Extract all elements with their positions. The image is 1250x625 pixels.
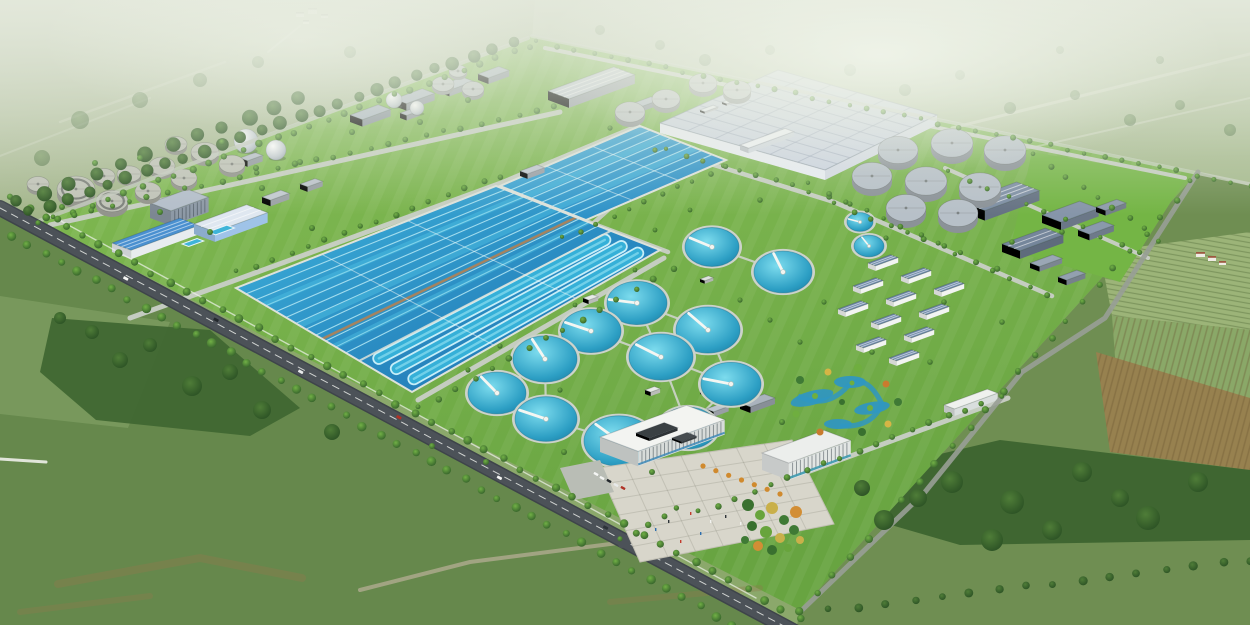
- tree: [207, 229, 213, 235]
- roadside-tree: [1127, 215, 1133, 221]
- roadside-tree: [512, 503, 521, 512]
- roadside-tree: [1097, 282, 1103, 288]
- roadside-tree: [493, 495, 500, 502]
- roadside-tree: [768, 482, 773, 487]
- roadside-tree: [327, 403, 335, 411]
- garden-tree: [775, 533, 785, 543]
- roadside-tree: [873, 441, 879, 447]
- clarifier-hub: [729, 382, 734, 387]
- pedestrian: [690, 512, 691, 515]
- roadside-tree: [374, 220, 379, 225]
- roadside-tree: [1044, 292, 1050, 298]
- pedestrian: [725, 515, 726, 518]
- roadside-tree: [543, 521, 551, 529]
- roadside-tree: [500, 454, 507, 461]
- roadside-tree: [357, 422, 366, 431]
- tree-clump: [909, 489, 927, 507]
- roadside-tree: [657, 541, 664, 548]
- roadside-tree: [982, 406, 989, 413]
- roadside-tree: [760, 596, 769, 605]
- autumn-tree: [777, 491, 782, 496]
- roadside-tree: [1081, 224, 1086, 229]
- roadside-tree: [673, 550, 680, 557]
- tree-clump: [874, 510, 894, 530]
- farm-roof: [1219, 261, 1226, 263]
- roadside-tree: [697, 602, 704, 609]
- roadside-tree: [92, 275, 101, 284]
- roadside-tree: [234, 314, 243, 323]
- roadside-tree: [516, 466, 523, 473]
- roadside-tree: [343, 412, 350, 419]
- roadside-tree: [936, 241, 941, 246]
- tree-clump: [941, 471, 963, 493]
- roadside-tree: [234, 269, 239, 274]
- roadside-tree: [1063, 319, 1068, 324]
- garden-tree: [790, 506, 802, 518]
- roadside-tree: [412, 410, 420, 418]
- roadside-tree: [308, 354, 314, 360]
- autumn-tree: [713, 468, 718, 473]
- roadside-tree: [35, 220, 40, 225]
- roadside-tree: [968, 424, 975, 431]
- roadside-tree: [612, 558, 620, 566]
- roadside-tree: [360, 380, 367, 387]
- tree-clump: [1111, 489, 1129, 507]
- tree-clump: [1022, 582, 1030, 590]
- roadside-tree: [227, 347, 236, 356]
- roadside-tree: [645, 522, 651, 528]
- roadside-tree: [58, 259, 65, 266]
- roadside-tree: [634, 287, 639, 292]
- roadside-tree: [147, 271, 154, 278]
- roadside-tree: [958, 250, 963, 255]
- roadside-tree: [183, 288, 191, 296]
- roadside-tree: [568, 493, 576, 501]
- tree: [557, 387, 562, 392]
- tree-clump: [112, 352, 128, 368]
- roadside-tree: [560, 235, 564, 239]
- tree-clump: [995, 585, 1003, 593]
- autumn-tree: [765, 487, 770, 492]
- roadside-tree: [292, 385, 301, 394]
- roadside-tree: [633, 530, 640, 537]
- tree: [1059, 229, 1065, 235]
- roadside-tree: [505, 355, 512, 362]
- tree-clump: [1132, 569, 1140, 577]
- roadside-tree: [674, 505, 679, 510]
- roadside-tree: [620, 519, 628, 527]
- roadside-tree: [452, 386, 458, 392]
- roadside-tree: [617, 536, 622, 541]
- tree-clump: [1072, 462, 1092, 482]
- roadside-tree: [436, 396, 443, 403]
- pond-island: [867, 405, 873, 411]
- tree-clump: [964, 588, 973, 597]
- pond-island: [812, 393, 818, 399]
- pedestrian: [700, 532, 701, 535]
- clarifier-hub: [706, 328, 711, 333]
- tree: [1009, 239, 1015, 245]
- roadside-tree: [1119, 242, 1125, 248]
- tree: [497, 343, 502, 348]
- roadside-tree: [578, 229, 583, 234]
- roadside-tree: [166, 278, 175, 287]
- tree: [927, 359, 933, 365]
- roadside-tree: [752, 489, 758, 495]
- tree-clump: [182, 376, 202, 396]
- tree: [941, 299, 947, 305]
- tree-clump: [1189, 561, 1198, 570]
- tree-clump: [1105, 573, 1113, 581]
- roadside-tree: [1144, 231, 1150, 237]
- clarifier-hub: [544, 417, 549, 422]
- roadside-tree: [650, 276, 657, 283]
- pond-island: [850, 381, 855, 386]
- roadside-tree: [725, 576, 732, 583]
- pedestrian: [710, 520, 711, 523]
- roadside-tree: [797, 615, 805, 623]
- roadside-tree: [442, 465, 451, 474]
- tree: [483, 459, 489, 465]
- clarifier-hub: [589, 329, 594, 334]
- garden-tree: [789, 525, 799, 535]
- roadside-tree: [865, 535, 873, 543]
- tree: [309, 225, 315, 231]
- roadside-tree: [1007, 276, 1012, 281]
- roadside-tree: [708, 567, 716, 575]
- clarifier-hub: [495, 391, 500, 396]
- roadside-tree: [207, 338, 217, 348]
- roadside-tree: [776, 605, 784, 613]
- tree-clump: [143, 338, 157, 352]
- roadside-tree: [51, 215, 56, 220]
- roadside-tree: [1080, 299, 1086, 305]
- roadside-tree: [527, 345, 533, 351]
- roadside-tree: [1049, 335, 1056, 342]
- clarifier-hub: [710, 245, 715, 250]
- clarifier-hub: [659, 355, 664, 360]
- tree: [767, 317, 772, 322]
- roadside-tree: [847, 553, 855, 561]
- roadside-tree: [377, 431, 386, 440]
- roadside-tree: [593, 222, 598, 227]
- tree-clump: [85, 325, 99, 339]
- tree-clump: [981, 529, 1003, 551]
- farm-roof: [1208, 256, 1216, 258]
- roadside-tree: [253, 264, 259, 270]
- garden-tree: [793, 411, 800, 418]
- roadside-tree: [242, 359, 250, 367]
- roadside-tree: [490, 366, 495, 371]
- roadside-tree: [910, 427, 915, 432]
- roadside-tree: [889, 223, 894, 228]
- tree: [797, 339, 802, 344]
- tree-clump: [253, 401, 271, 419]
- clarifier-hub: [635, 301, 640, 306]
- roadside-tree: [711, 612, 721, 622]
- rendering-canvas: [0, 0, 1250, 625]
- tree-clump: [881, 600, 889, 608]
- tree-clump: [324, 424, 340, 440]
- roadside-tree: [905, 230, 910, 235]
- roadside-tree: [745, 585, 752, 592]
- roadside-tree: [533, 476, 539, 482]
- roadside-tree: [804, 467, 810, 473]
- garden-tree: [760, 526, 772, 538]
- roadside-tree: [563, 530, 570, 537]
- roadside-tree: [307, 394, 316, 403]
- roadside-tree: [784, 474, 791, 481]
- roadside-tree: [795, 607, 803, 615]
- roadside-tree: [605, 511, 611, 517]
- roadside-tree: [828, 572, 835, 579]
- roadside-tree: [930, 460, 938, 468]
- tree: [737, 297, 742, 302]
- garden-tree: [883, 381, 890, 388]
- roadside-tree: [142, 304, 152, 314]
- garden-tree: [767, 545, 777, 555]
- roadside-tree: [416, 404, 421, 409]
- garden-tree: [796, 536, 804, 544]
- garden-tree: [766, 502, 778, 514]
- roadside-tree: [560, 328, 565, 333]
- roadside-tree: [79, 232, 85, 238]
- pedestrian: [655, 528, 656, 531]
- roadside-tree: [962, 408, 968, 414]
- tree-clump: [1042, 520, 1062, 540]
- roadside-tree: [868, 216, 873, 221]
- tree: [633, 268, 638, 273]
- roadside-tree: [946, 412, 952, 418]
- roadside-tree: [990, 268, 995, 273]
- roadside-tree: [269, 257, 275, 263]
- roadside-tree: [677, 593, 685, 601]
- roadside-tree: [448, 428, 455, 435]
- garden-tree: [796, 376, 804, 384]
- roadside-tree: [339, 371, 347, 379]
- tree-clump: [1220, 558, 1229, 567]
- garden-tree: [784, 544, 792, 552]
- clarifier-hub: [867, 244, 870, 247]
- roadside-tree: [612, 214, 617, 219]
- roadside-tree: [115, 249, 123, 257]
- roadside-tree: [413, 449, 420, 456]
- roadside-tree: [427, 456, 437, 466]
- tree: [653, 228, 658, 233]
- tree-clump: [1000, 490, 1024, 514]
- autumn-tree: [700, 463, 705, 468]
- tree-clump: [912, 597, 919, 604]
- tree-clump: [854, 604, 863, 613]
- roadside-tree: [7, 232, 16, 241]
- roadside-tree: [1156, 239, 1161, 244]
- roadside-tree: [925, 419, 932, 426]
- garden-tree: [894, 398, 902, 406]
- tree-clump: [1163, 566, 1170, 573]
- roadside-tree: [321, 236, 327, 242]
- roadside-tree: [306, 244, 311, 249]
- roadside-tree: [131, 259, 138, 266]
- roadside-tree: [552, 484, 560, 492]
- tree: [649, 469, 655, 475]
- tree-clump: [222, 364, 238, 380]
- roadside-tree: [580, 317, 587, 324]
- roadside-tree: [271, 335, 279, 343]
- roadside-tree: [898, 497, 905, 504]
- tree: [821, 299, 826, 304]
- clarifier-hub: [858, 220, 861, 223]
- roadside-tree: [157, 313, 166, 322]
- roadside-tree: [916, 478, 923, 485]
- roadside-tree: [342, 230, 348, 236]
- roadside-tree: [23, 241, 31, 249]
- roadside-tree: [646, 575, 656, 585]
- tree: [465, 367, 470, 372]
- roadside-tree: [94, 240, 102, 248]
- tree-clump: [1136, 506, 1160, 530]
- roadside-tree: [889, 434, 895, 440]
- tree-clump: [54, 312, 66, 324]
- roadside-tree: [258, 368, 266, 376]
- roadside-tree: [220, 306, 227, 313]
- tree-clump: [1079, 576, 1088, 585]
- roadside-tree: [173, 322, 181, 330]
- tree: [883, 235, 888, 240]
- roadside-tree: [613, 297, 619, 303]
- roadside-tree: [837, 456, 842, 461]
- roadside-tree: [543, 335, 549, 341]
- garden-tree: [817, 429, 824, 436]
- tree-clump: [854, 480, 870, 496]
- roadside-tree: [527, 512, 535, 520]
- roadside-tree: [597, 549, 606, 558]
- roadside-tree: [941, 243, 947, 249]
- roadside-tree: [391, 400, 400, 409]
- autumn-tree: [752, 482, 757, 487]
- roadside-tree: [978, 401, 983, 406]
- tree: [779, 419, 785, 425]
- garden-tree: [779, 515, 789, 525]
- tree: [561, 449, 567, 455]
- roadside-tree: [596, 307, 602, 313]
- tree: [999, 319, 1005, 325]
- roadside-tree: [108, 284, 116, 292]
- roadside-tree: [1063, 217, 1068, 222]
- roadside-tree: [193, 331, 200, 338]
- roadside-tree: [376, 390, 383, 397]
- garden-tree: [747, 521, 757, 531]
- roadside-tree: [123, 296, 130, 303]
- roadside-tree: [696, 508, 701, 513]
- autumn-tree: [739, 477, 744, 482]
- pedestrian: [680, 540, 681, 543]
- roadside-tree: [1127, 249, 1132, 254]
- roadside-tree: [462, 474, 470, 482]
- farm-roof: [1196, 252, 1205, 254]
- roadside-tree: [43, 250, 51, 258]
- roadside-tree: [255, 323, 263, 331]
- roadside-tree: [463, 436, 472, 445]
- garden-tree: [858, 428, 866, 436]
- roadside-tree: [881, 216, 885, 220]
- roadside-tree: [358, 223, 363, 228]
- roadside-tree: [628, 567, 635, 574]
- roadside-tree: [473, 376, 479, 382]
- roadside-tree: [815, 590, 821, 596]
- roadside-tree: [478, 486, 486, 494]
- roadside-tree: [953, 252, 958, 257]
- roadside-tree: [1098, 235, 1102, 239]
- roadside-tree: [731, 496, 737, 502]
- pedestrian: [740, 522, 741, 525]
- roadside-tree: [897, 224, 903, 230]
- garden-tree: [741, 536, 749, 544]
- pedestrian: [668, 520, 669, 523]
- roadside-tree: [821, 460, 827, 466]
- garden-tree: [885, 421, 892, 428]
- roadside-tree: [288, 345, 295, 352]
- roadside-tree: [950, 443, 956, 449]
- roadside-tree: [715, 503, 722, 510]
- roadside-tree: [1032, 352, 1038, 358]
- roadside-tree: [72, 266, 81, 275]
- tree-clump: [825, 606, 832, 613]
- roadside-tree: [577, 537, 586, 546]
- garden-tree: [825, 369, 832, 376]
- roadside-tree: [1015, 368, 1021, 374]
- roadside-tree: [973, 259, 979, 265]
- roadside-tree: [1157, 214, 1163, 220]
- tree: [429, 443, 435, 449]
- roadside-tree: [692, 558, 701, 567]
- roadside-tree: [584, 502, 591, 509]
- roadside-tree: [671, 266, 677, 272]
- roadside-tree: [199, 297, 206, 304]
- roadside-tree: [428, 419, 435, 426]
- roadside-tree: [1137, 250, 1142, 255]
- roadside-tree: [323, 362, 331, 370]
- roadside-tree: [278, 377, 285, 384]
- roadside-tree: [393, 440, 401, 448]
- roadside-tree: [857, 448, 864, 455]
- tree-clump: [1188, 472, 1208, 492]
- garden-tree: [742, 499, 754, 511]
- roadside-tree: [662, 513, 668, 519]
- roadside-tree: [480, 445, 488, 453]
- roadside-tree: [999, 394, 1004, 399]
- aerial-rendering-wastewater-plant: [0, 0, 1250, 625]
- tree-clump: [939, 593, 946, 600]
- roadside-tree: [1142, 226, 1147, 231]
- garden-tree: [753, 541, 763, 551]
- autumn-tree: [726, 473, 731, 478]
- tree: [869, 349, 875, 355]
- tree-clump: [1049, 581, 1056, 588]
- roadside-tree: [1028, 285, 1033, 290]
- clarifier-hub: [543, 357, 548, 362]
- roadside-tree: [919, 232, 924, 237]
- garden-tree: [839, 399, 845, 405]
- roadside-tree: [290, 251, 295, 256]
- garden-tree: [854, 364, 862, 372]
- roadside-tree: [63, 223, 70, 230]
- garden-tree: [755, 510, 765, 520]
- roadside-tree: [640, 531, 648, 539]
- clarifier-hub: [781, 270, 786, 275]
- roadside-tree: [662, 584, 671, 593]
- tree: [573, 303, 578, 308]
- roadside-tree: [1109, 265, 1116, 272]
